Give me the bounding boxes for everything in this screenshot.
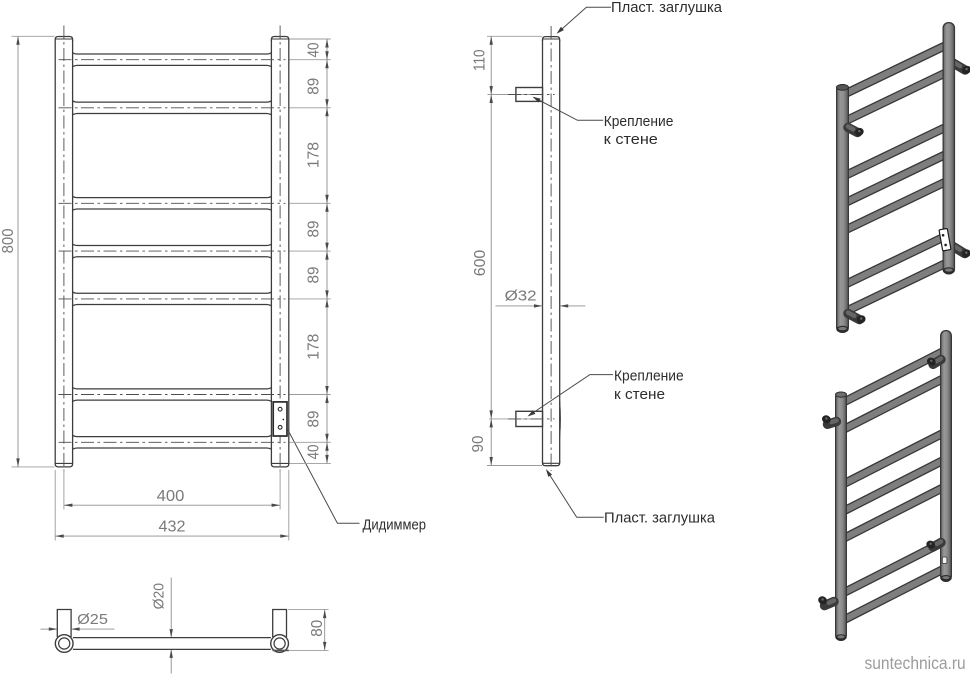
svg-text:Пласт. заглушка: Пласт. заглушка	[604, 511, 716, 527]
svg-text:suntechnica.ru: suntechnica.ru	[865, 653, 966, 673]
svg-text:110: 110	[472, 49, 489, 71]
svg-text:Ø32: Ø32	[505, 288, 537, 305]
svg-text:Пласт. заглушка: Пласт. заглушка	[611, 0, 723, 16]
svg-text:к стене: к стене	[614, 387, 665, 403]
svg-text:89: 89	[306, 411, 323, 428]
svg-text:40: 40	[306, 42, 323, 57]
svg-text:800: 800	[0, 228, 17, 253]
svg-text:Крепление: Крепление	[604, 114, 674, 130]
svg-text:178: 178	[306, 334, 323, 360]
svg-text:80: 80	[309, 619, 326, 636]
svg-text:90: 90	[470, 435, 487, 452]
svg-text:400: 400	[157, 488, 185, 505]
svg-text:89: 89	[306, 78, 323, 95]
svg-text:40: 40	[306, 444, 323, 459]
svg-text:89: 89	[306, 267, 323, 284]
svg-text:432: 432	[159, 519, 186, 536]
svg-text:к стене: к стене	[604, 132, 658, 148]
svg-text:89: 89	[306, 221, 323, 238]
svg-text:Крепление: Крепление	[614, 369, 684, 385]
svg-text:178: 178	[306, 142, 323, 168]
svg-text:Ø25: Ø25	[77, 611, 108, 628]
svg-text:600: 600	[472, 249, 489, 276]
svg-text:Ø20: Ø20	[150, 583, 167, 609]
svg-text:Дидиммер: Дидиммер	[363, 517, 427, 534]
